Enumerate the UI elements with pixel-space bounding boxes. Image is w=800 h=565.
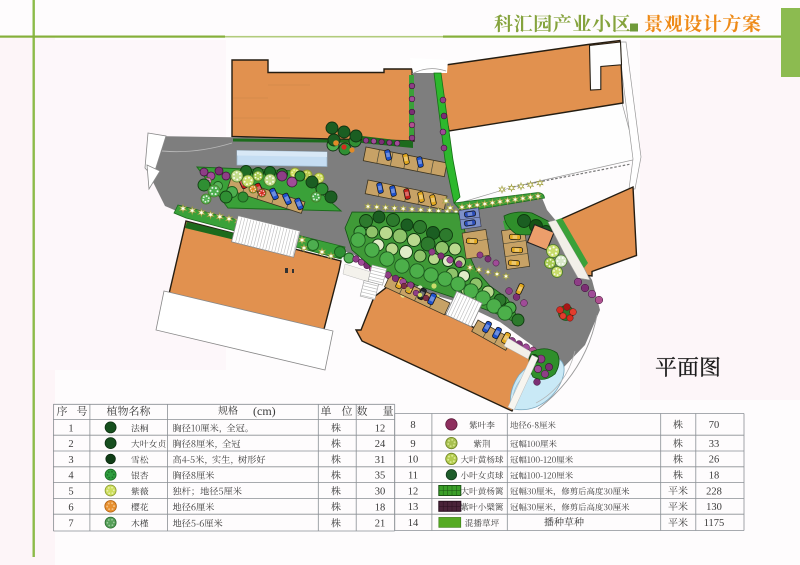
svg-text:130: 130 — [706, 502, 722, 513]
svg-text:10: 10 — [408, 455, 419, 466]
svg-text:7: 7 — [68, 519, 73, 530]
svg-text:12: 12 — [408, 486, 419, 497]
svg-text:13: 13 — [408, 502, 419, 513]
svg-text:8: 8 — [410, 420, 415, 431]
svg-text:26: 26 — [709, 455, 720, 466]
svg-text:18: 18 — [709, 471, 720, 482]
svg-text:24: 24 — [375, 439, 386, 450]
svg-text:33: 33 — [709, 439, 720, 450]
svg-text:2: 2 — [68, 439, 73, 450]
svg-text:21: 21 — [375, 519, 386, 530]
svg-text:18: 18 — [375, 502, 386, 513]
svg-text:1: 1 — [68, 423, 73, 434]
svg-text:30: 30 — [375, 487, 386, 498]
svg-text:228: 228 — [706, 486, 722, 497]
svg-text:4: 4 — [68, 471, 74, 482]
svg-text:35: 35 — [375, 471, 386, 482]
svg-text:6: 6 — [68, 502, 73, 513]
svg-text:70: 70 — [709, 420, 720, 431]
svg-text:1175: 1175 — [704, 518, 725, 529]
svg-text:14: 14 — [408, 518, 419, 529]
svg-text:3: 3 — [68, 455, 73, 466]
svg-text:31: 31 — [375, 455, 386, 466]
svg-text:9: 9 — [410, 439, 415, 450]
svg-text:11: 11 — [408, 471, 418, 482]
svg-text:5: 5 — [68, 487, 73, 498]
svg-text:(cm): (cm) — [253, 404, 276, 418]
svg-text:12: 12 — [375, 423, 386, 434]
